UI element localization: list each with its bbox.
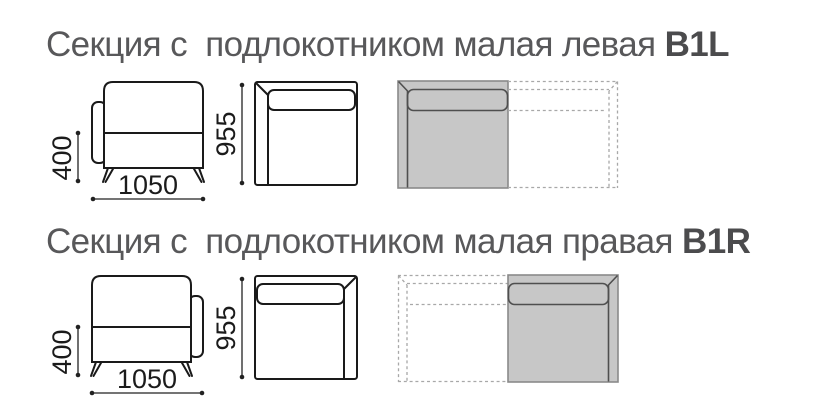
section-highlight [398, 81, 508, 188]
placement-schematic-b1l [385, 72, 625, 207]
dim-depth: 955 [211, 83, 244, 186]
ghost-outline [398, 276, 508, 383]
dim-height-label: 400 [47, 135, 77, 180]
dim-height: 400 [47, 325, 80, 378]
dim-height-label: 400 [47, 329, 77, 374]
section-code: B1L [665, 25, 729, 64]
section-highlight [508, 275, 618, 382]
dim-height: 400 [47, 131, 80, 184]
top-view-outline [255, 276, 357, 379]
dim-width: 1050 [91, 170, 206, 201]
top-view-b1r: 955 [210, 266, 370, 401]
section-title-b1l: Секция с подлокотником малая левая B1L [46, 26, 729, 65]
back-cushion [257, 284, 344, 304]
dim-width-label: 1050 [118, 170, 178, 200]
dim-depth-label: 955 [211, 111, 241, 156]
dim-width: 1050 [90, 364, 205, 395]
placement-schematic-b1r [385, 266, 625, 401]
catalog-page: Секция с подлокотником малая левая B1L 4… [0, 0, 840, 420]
sofa-body [104, 82, 203, 168]
front-view-b1l: 400 1050 [40, 72, 215, 207]
dim-depth-label: 955 [211, 305, 241, 350]
section-title-b1r: Секция с подлокотником малая правая B1R [46, 223, 750, 262]
top-view-b1l: 955 [210, 72, 370, 207]
dim-depth: 955 [211, 277, 244, 380]
section-title-text: Секция с подлокотником малая правая [46, 222, 682, 261]
dim-width-label: 1050 [117, 364, 177, 394]
front-view-b1r: 400 1050 [40, 266, 215, 401]
section-code: B1R [682, 222, 750, 261]
back-cushion [268, 90, 355, 110]
ghost-outline [508, 82, 618, 189]
top-view-outline [255, 82, 357, 185]
section-title-text: Секция с подлокотником малая левая [46, 25, 665, 64]
sofa-body [92, 276, 191, 362]
